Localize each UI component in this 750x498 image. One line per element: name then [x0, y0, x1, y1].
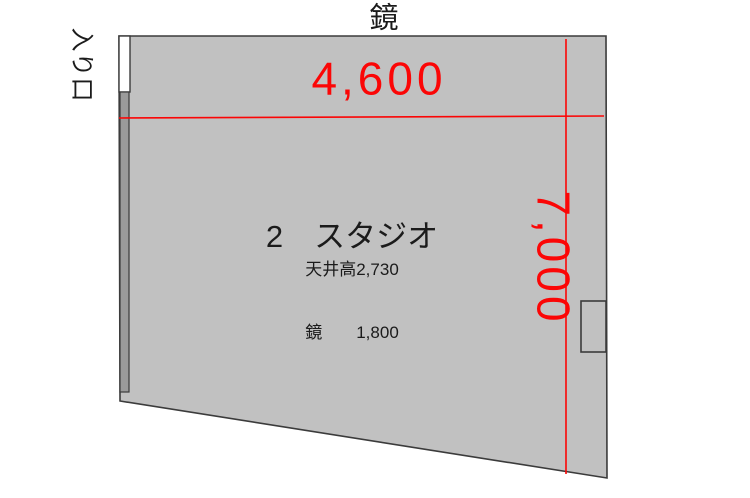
- entrance-label: 入り口: [67, 28, 95, 103]
- entrance-door-opening: [119, 36, 130, 92]
- depth-dimension-value: 7,000: [527, 190, 580, 325]
- floor-plan: 鏡 入り口 4,600 7,000 2 スタジオ 天井高2,730 鏡 1,80…: [0, 0, 750, 498]
- left-wall-strip: [120, 92, 129, 392]
- right-wall-door: [581, 301, 606, 352]
- mirror-wall-label: 鏡: [369, 2, 398, 35]
- width-dimension-value: 4,600: [311, 53, 446, 106]
- mirror-height-label: 鏡 1,800: [305, 322, 399, 343]
- ceiling-height-label: 天井高2,730: [305, 259, 399, 280]
- room-details: 天井高2,730 鏡 1,800: [305, 217, 399, 385]
